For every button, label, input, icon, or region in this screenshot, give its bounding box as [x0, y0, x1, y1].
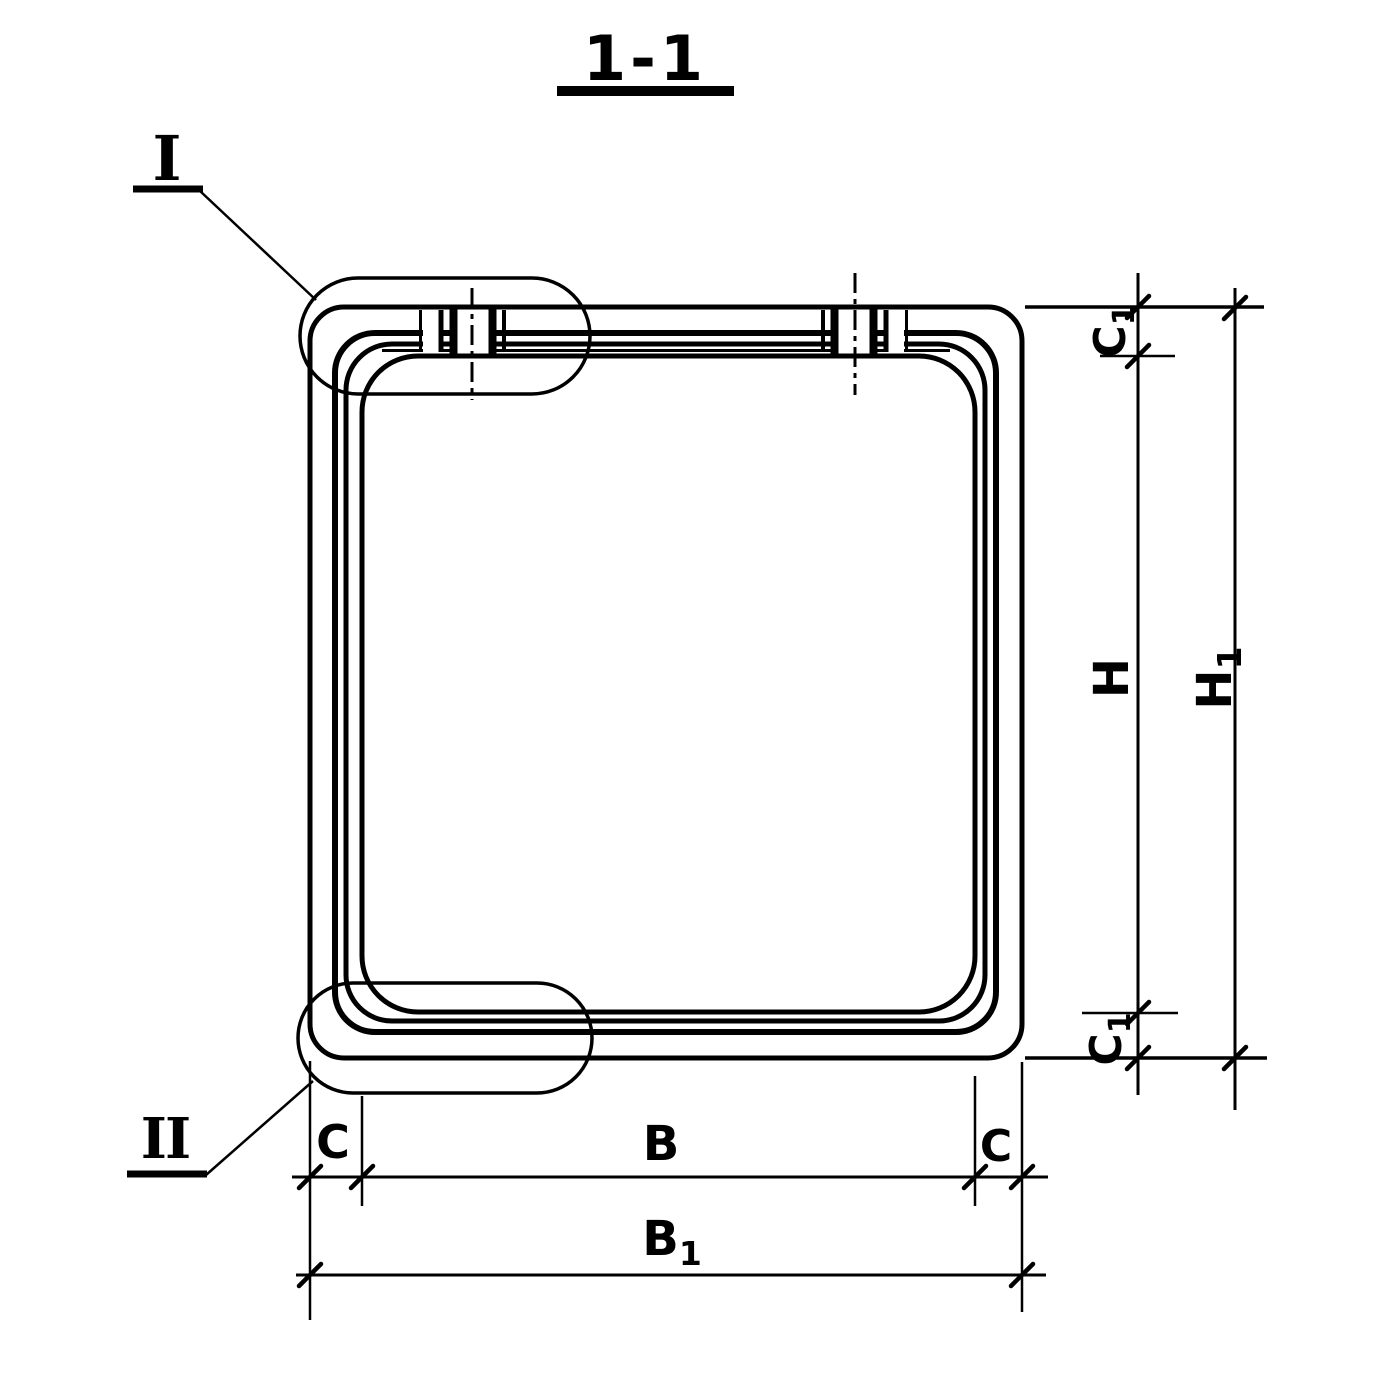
dimension-lines	[292, 273, 1267, 1320]
dimension-ticks	[299, 296, 1246, 1286]
dim-label-c-left: C	[316, 1115, 350, 1169]
frame-outer-contour	[310, 307, 1022, 1058]
dim-label-c1-bottom: C1	[1081, 1012, 1138, 1065]
dim-label-c1-top: C1	[1085, 304, 1142, 357]
detail-labels: I II	[141, 122, 189, 1172]
detail-leader-bottom	[206, 1081, 313, 1175]
dim-label-c-right: C	[980, 1121, 1012, 1172]
dim-label-subscript: 1	[1103, 1012, 1138, 1033]
dim-label-subscript: 1	[1210, 646, 1249, 669]
dim-label-b1: B1	[642, 1211, 702, 1273]
reinforcement-contour-outer	[335, 333, 996, 1032]
dimension-labels: C1 H H1 C1 C B C B1	[316, 304, 1249, 1273]
technical-drawing-canvas: 1-1 I II C1 H H1 C1 C B C B1	[0, 0, 1374, 1379]
dim-label-base: C	[316, 1115, 350, 1169]
dim-label-subscript: 1	[1107, 304, 1142, 325]
frame-inner-contour	[362, 356, 975, 1012]
dim-label-base: B	[642, 1211, 679, 1267]
dim-label-h: H	[1084, 658, 1140, 698]
dim-label-b: B	[643, 1116, 680, 1172]
detail-label-II: II	[141, 1106, 189, 1172]
detail-label-I: I	[152, 122, 181, 195]
dim-label-base: H	[1084, 658, 1140, 698]
dim-label-base: C	[980, 1121, 1012, 1172]
section-title-text: 1-1	[583, 22, 707, 95]
dim-label-subscript: 1	[679, 1234, 702, 1273]
detail-leader-top	[200, 191, 316, 300]
drawing-sheet: 1-1 I II C1 H H1 C1 C B C B1	[0, 0, 1374, 1379]
frame-section	[310, 307, 1022, 1058]
joint-slot-gap	[888, 310, 904, 352]
dim-label-base: C	[1081, 1033, 1132, 1065]
reinforcement-contour-inner	[346, 344, 985, 1021]
dim-label-base: C	[1085, 325, 1136, 357]
top-slab-joint-right	[823, 273, 907, 395]
dim-label-h1: H1	[1187, 646, 1249, 709]
detail-bubble-bottom	[298, 983, 592, 1093]
joint-slot-gap	[423, 310, 439, 352]
dim-label-base: B	[643, 1116, 680, 1172]
section-title: 1-1	[557, 22, 734, 95]
dim-label-base: H	[1187, 669, 1243, 709]
